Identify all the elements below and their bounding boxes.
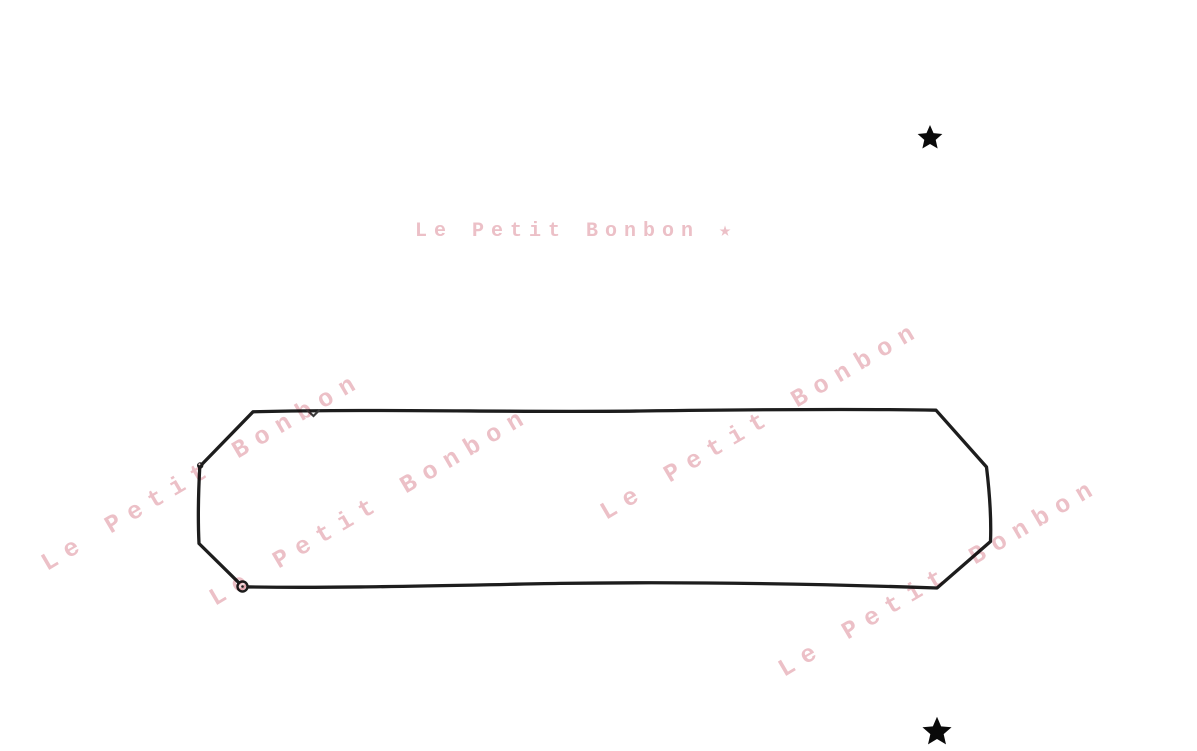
watermark-text-horizontal: Le Petit Bonbon ★ (415, 217, 738, 247)
star-icon-top-right (918, 125, 943, 149)
frame-svg (0, 0, 1197, 751)
stamp-canvas: Le Petit Bonbon ★ Le Petit Bonbon Le Pet… (0, 0, 1197, 751)
star-icon-bottom-right (922, 717, 951, 745)
octagon-frame-path (198, 409, 990, 588)
